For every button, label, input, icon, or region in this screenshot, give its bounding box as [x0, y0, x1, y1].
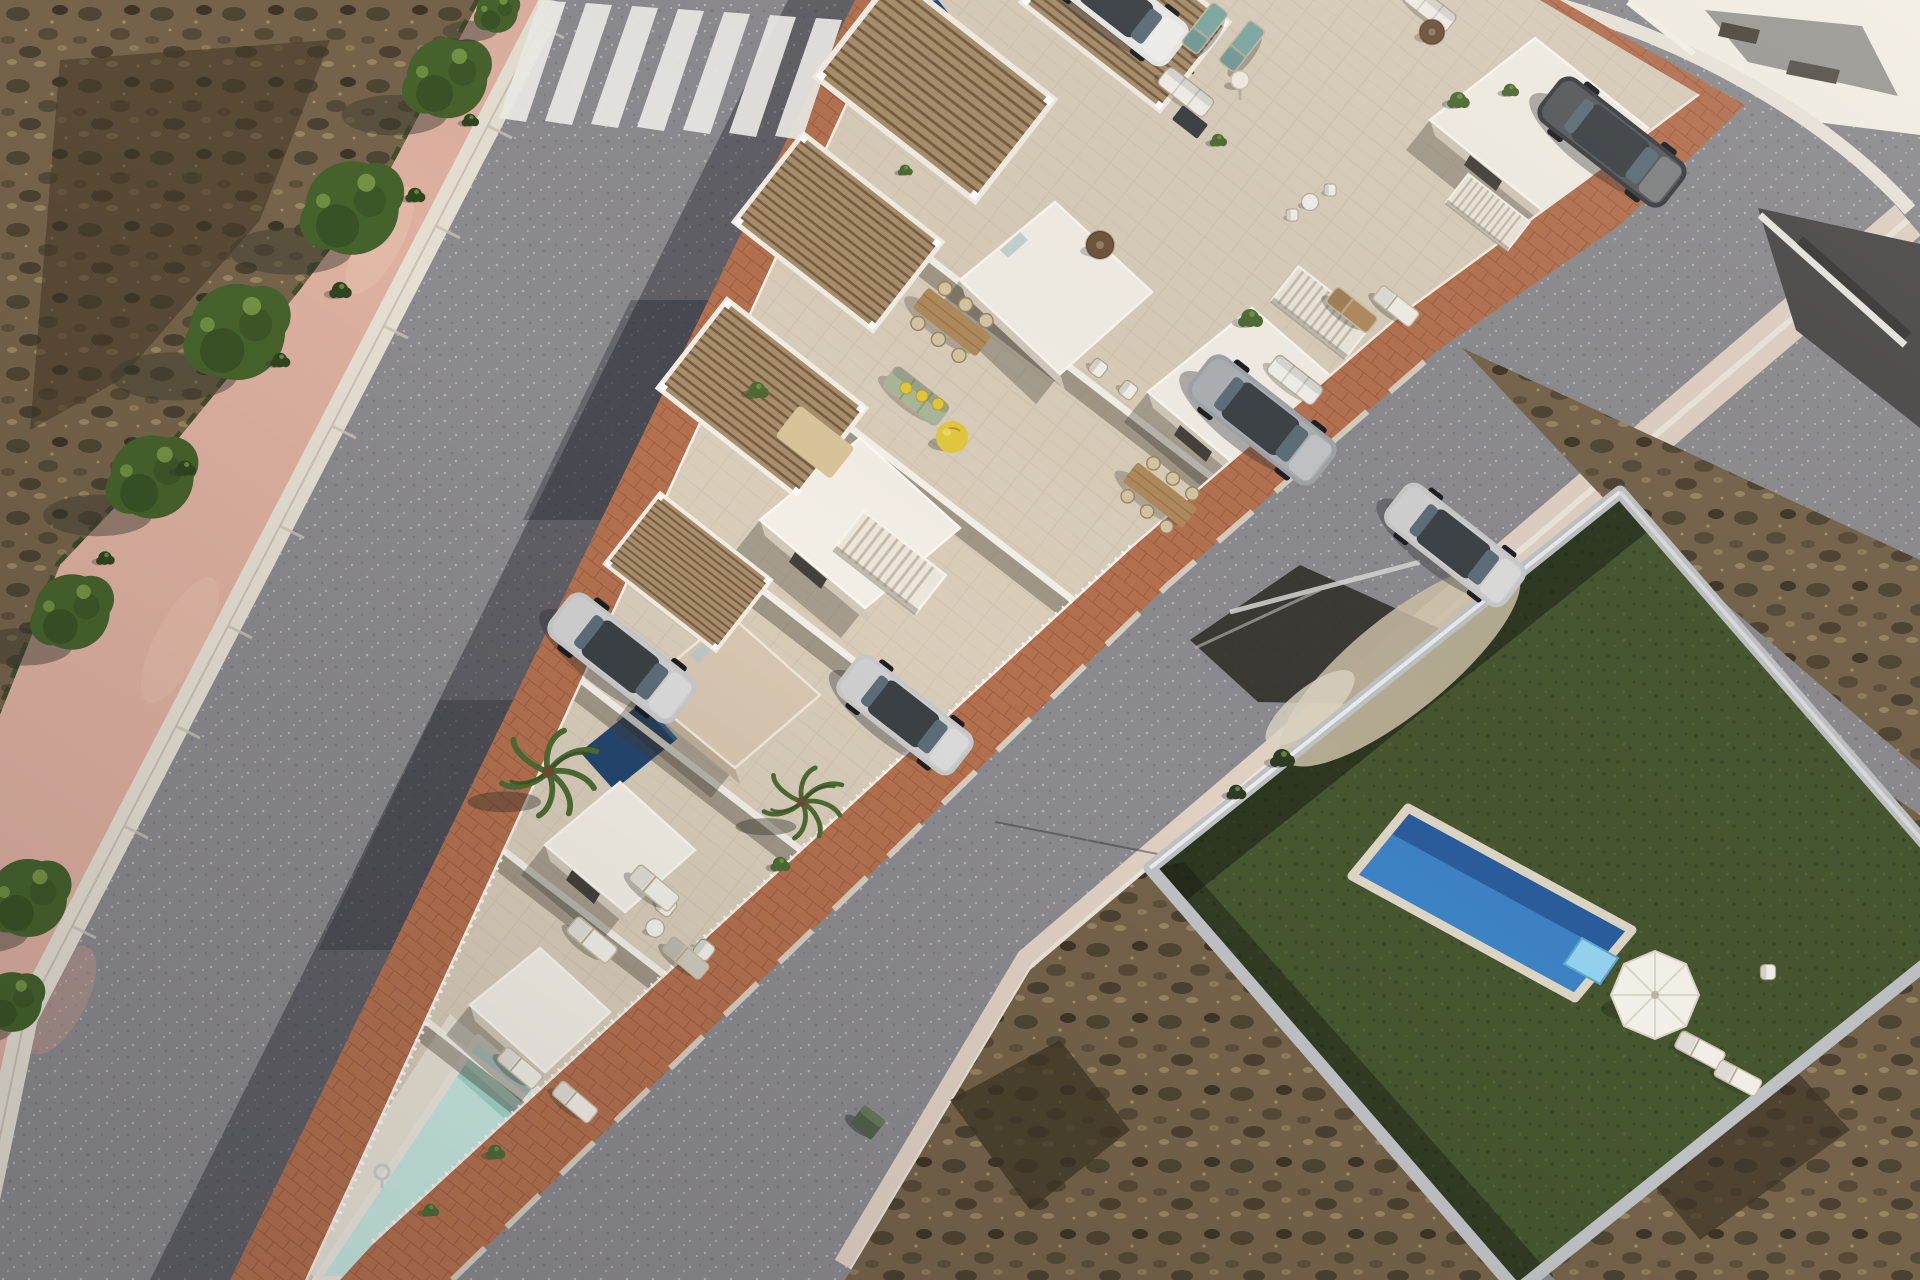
scene-svg — [0, 0, 1920, 1280]
aerial-render — [0, 0, 1920, 1280]
light-vignette — [0, 0, 1920, 1280]
